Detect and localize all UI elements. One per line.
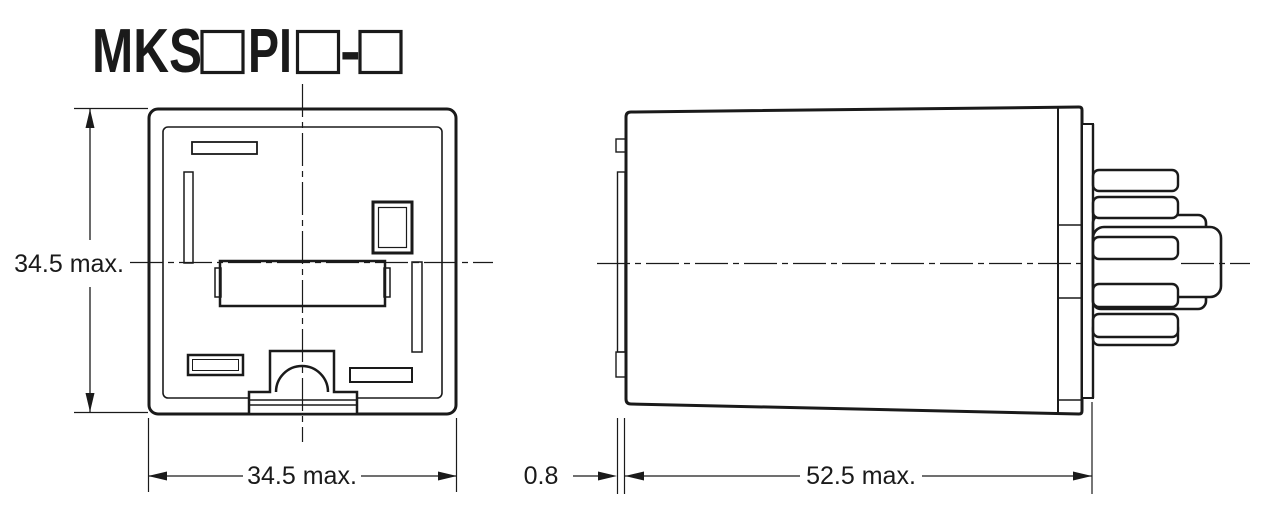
side-front-panel-lip (618, 172, 626, 352)
front-width-arrow-left (148, 472, 167, 481)
front-left-slot (184, 172, 193, 263)
front-width-dim-label: 34.5 max. (247, 462, 357, 490)
relay-pin-3 (1093, 237, 1178, 259)
front-bottom-left-window-inner (193, 360, 239, 371)
product-model-title: MKS PI - (92, 17, 401, 86)
front-width-arrow-right (438, 472, 457, 481)
technical-drawing-page: MKS PI - (0, 0, 1262, 506)
body-length-arrow-right (1073, 472, 1092, 481)
model-separator-text: - (340, 17, 361, 86)
side-body-outline (626, 107, 1082, 414)
front-height-dim-label: 34.5 max. (14, 250, 124, 278)
panel-thickness-dim-label: 0.8 (524, 462, 559, 490)
model-placeholder-box-1 (202, 32, 243, 73)
dimension-body-length: 52.5 max. (625, 402, 1092, 494)
relay-pin-2 (1093, 197, 1178, 218)
front-top-slot (192, 142, 257, 154)
model-prefix-text: MKS (92, 17, 202, 86)
side-lip-tab-bottom (616, 352, 626, 377)
model-middle-text: PI (248, 17, 292, 86)
front-bottom-right-slot (350, 368, 412, 382)
dimension-panel-thickness: 0.8 (524, 418, 625, 494)
front-bottom-left-window-outer (188, 355, 243, 375)
model-placeholder-box-2 (298, 32, 339, 73)
side-view (597, 107, 1250, 414)
body-length-arrow-left (625, 472, 644, 481)
relay-outline-drawing: MKS PI - (0, 0, 1262, 506)
front-indicator-window-inner (379, 208, 407, 248)
relay-pin-4 (1093, 284, 1178, 307)
front-right-slot (412, 262, 422, 352)
model-placeholder-box-3 (360, 32, 401, 73)
front-height-arrow-down (86, 393, 95, 412)
body-length-dim-label: 52.5 max. (806, 462, 916, 490)
front-height-arrow-up (86, 109, 95, 128)
panel-thickness-arrow (598, 472, 617, 481)
side-lip-tab-top (616, 139, 626, 152)
side-socket-base-plate (1082, 124, 1093, 398)
relay-pin-5 (1093, 314, 1178, 337)
relay-pin-1 (1093, 170, 1178, 191)
dimension-front-height: 34.5 max. (14, 109, 148, 413)
front-view (130, 84, 493, 442)
